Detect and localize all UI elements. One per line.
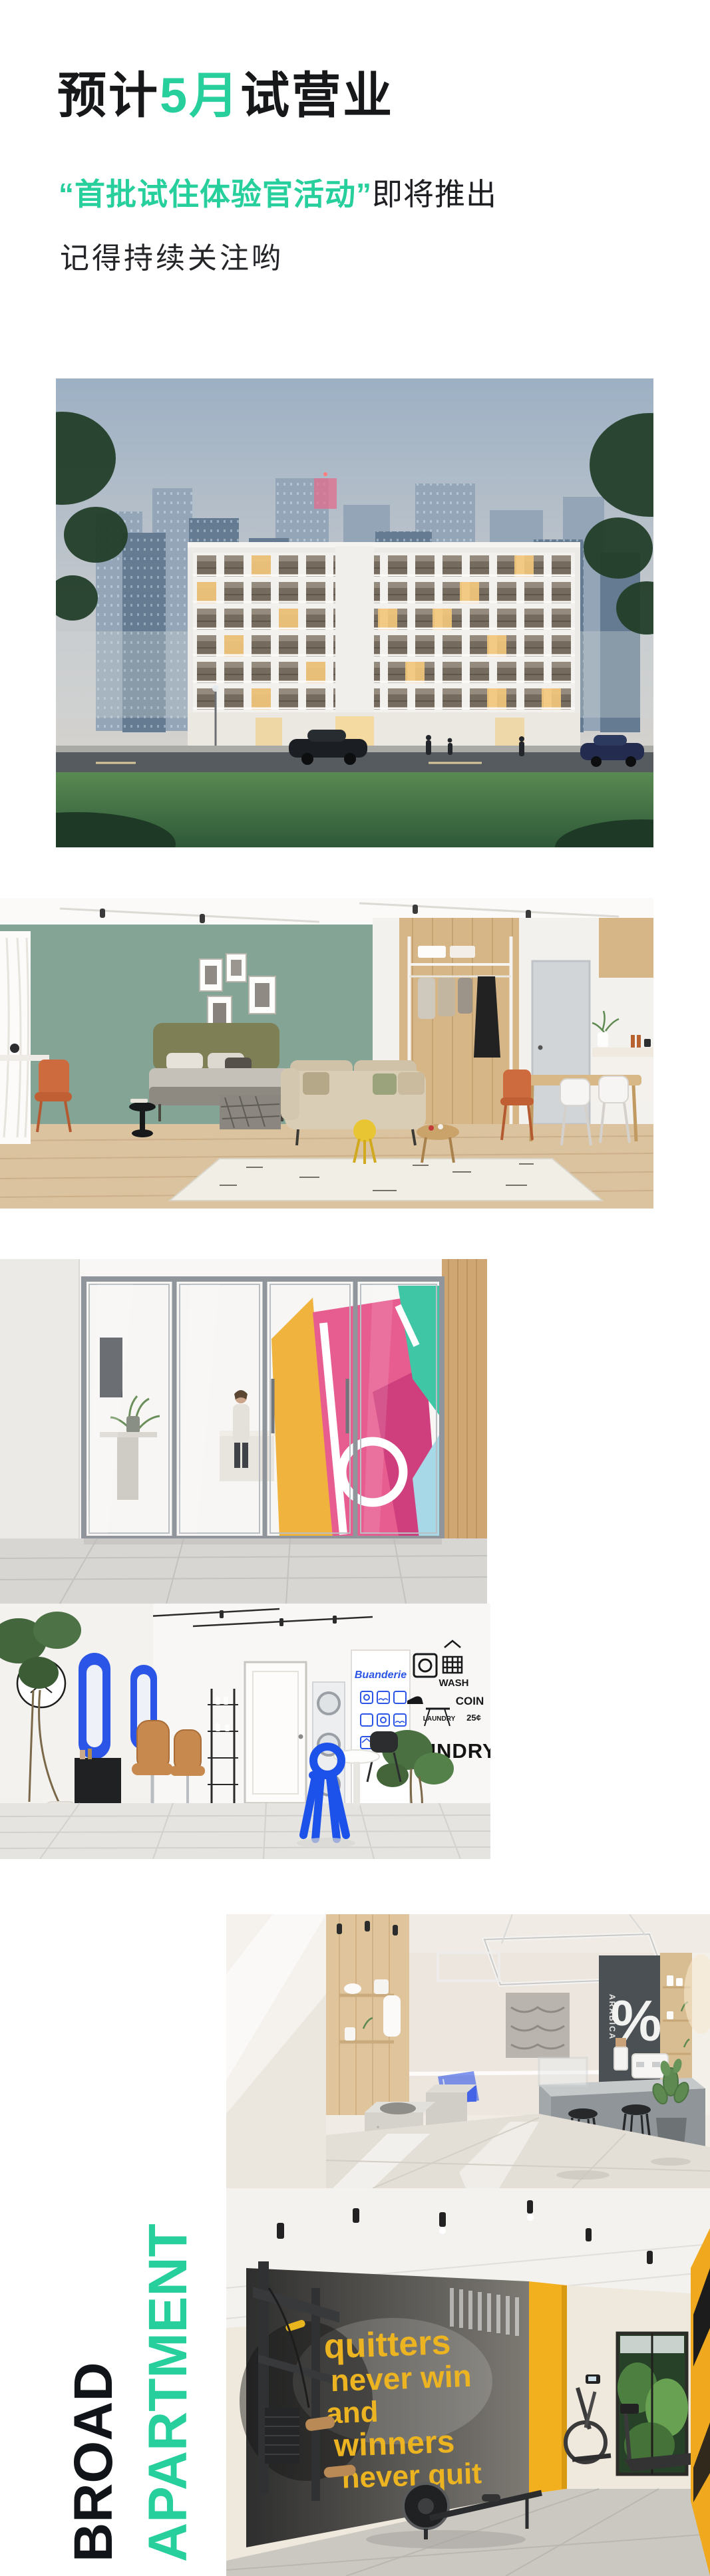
- subtitle-highlight: “首批试住体验官活动”: [59, 177, 372, 212]
- buanderie-script: Buanderie: [355, 1669, 407, 1681]
- mural-line-4: winners: [333, 2424, 455, 2464]
- lobby-glass-door-illustration: [0, 1259, 487, 1604]
- subtitle-line2: 记得持续关注哟: [60, 234, 283, 277]
- page-title: 预计5月试营业: [57, 56, 394, 127]
- subtitle-line1: “首批试住体验官活动”即将推出: [59, 170, 497, 214]
- mural-line-2: never win: [330, 2359, 472, 2398]
- yellow-band: [529, 2281, 567, 2494]
- patterned-rug: [170, 1159, 602, 1201]
- coffee-bar-illustration: ARABICA %: [226, 1914, 710, 2188]
- main-building: [188, 542, 580, 746]
- brand-broad-text: BROAD: [67, 2362, 121, 2562]
- studio-room-photo: [0, 898, 653, 1209]
- title-highlight-month: 5月: [160, 68, 240, 123]
- neon-sign: [314, 478, 337, 509]
- gym-room-illustration: quitters never win and winners never qui…: [226, 2188, 710, 2576]
- article-page: 预计5月试营业 “首批试住体验官活动”即将推出 记得持续关注哟: [0, 0, 710, 2576]
- subtitle-rest: 即将推出: [372, 177, 497, 212]
- coffee-bar-photo: ARABICA %: [226, 1914, 710, 2188]
- white-door: [245, 1662, 306, 1803]
- gym-room-photo: quitters never win and winners never qui…: [226, 2188, 710, 2576]
- building-exterior-illustration: [56, 378, 653, 847]
- coin-word: COIN: [456, 1695, 484, 1707]
- laundry-small-word: LAUNDRY: [423, 1715, 456, 1723]
- lobby-glass-door-photo: [0, 1259, 487, 1604]
- laundry-room-photo: Buanderie WASH COIN: [0, 1604, 490, 1859]
- title-post: 试营业: [240, 68, 394, 123]
- laundry-room-illustration: Buanderie WASH COIN: [0, 1604, 490, 1859]
- studio-room-illustration: [0, 898, 653, 1209]
- wash-word: WASH: [439, 1677, 469, 1689]
- building-exterior-photo: [56, 378, 653, 847]
- brand-apartment-text: APARTMENT: [141, 2223, 196, 2562]
- price-word: 25¢: [466, 1713, 481, 1723]
- title-pre: 预计: [57, 68, 160, 123]
